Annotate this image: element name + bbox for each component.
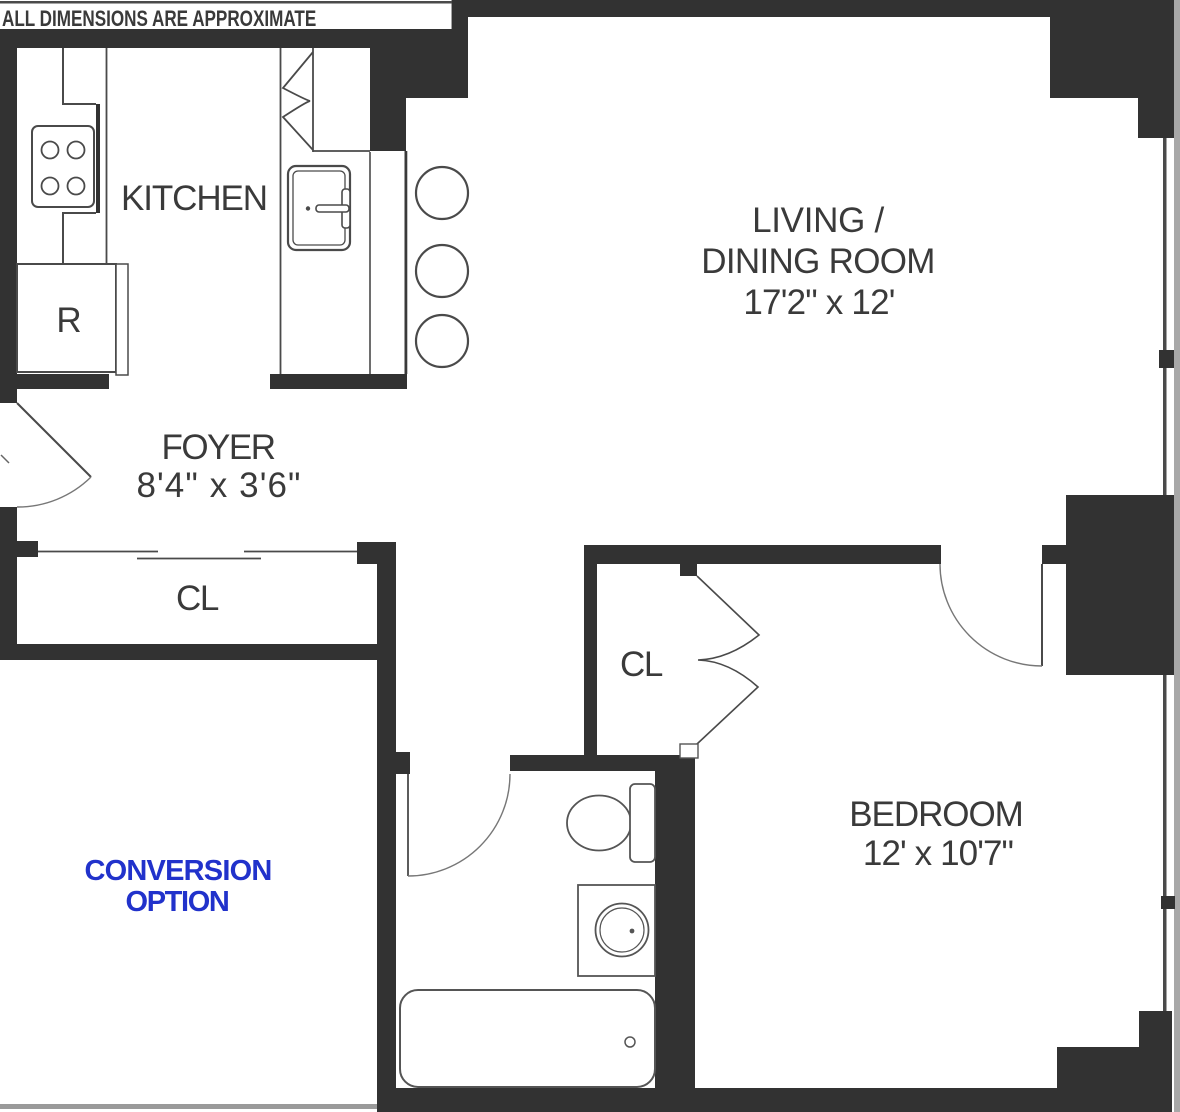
svg-text:CL: CL <box>620 645 663 684</box>
svg-text:CONVERSION: CONVERSION <box>85 855 272 887</box>
svg-text:8'4" x 3'6": 8'4" x 3'6" <box>136 466 301 505</box>
svg-text:ALL DIMENSIONS ARE APPROXIMATE: ALL DIMENSIONS ARE APPROXIMATE <box>2 7 316 32</box>
svg-text:DINING ROOM: DINING ROOM <box>701 242 934 281</box>
svg-text:FOYER: FOYER <box>161 428 274 467</box>
svg-text:OPTION: OPTION <box>126 886 229 918</box>
svg-text:12' x 10'7": 12' x 10'7" <box>863 834 1013 873</box>
svg-text:BEDROOM: BEDROOM <box>849 795 1023 834</box>
svg-text:R: R <box>56 301 81 340</box>
svg-text:KITCHEN: KITCHEN <box>121 179 267 218</box>
svg-text:LIVING /: LIVING / <box>752 201 884 240</box>
svg-text:17'2" x 12': 17'2" x 12' <box>743 283 894 322</box>
svg-text:CL: CL <box>176 579 219 618</box>
